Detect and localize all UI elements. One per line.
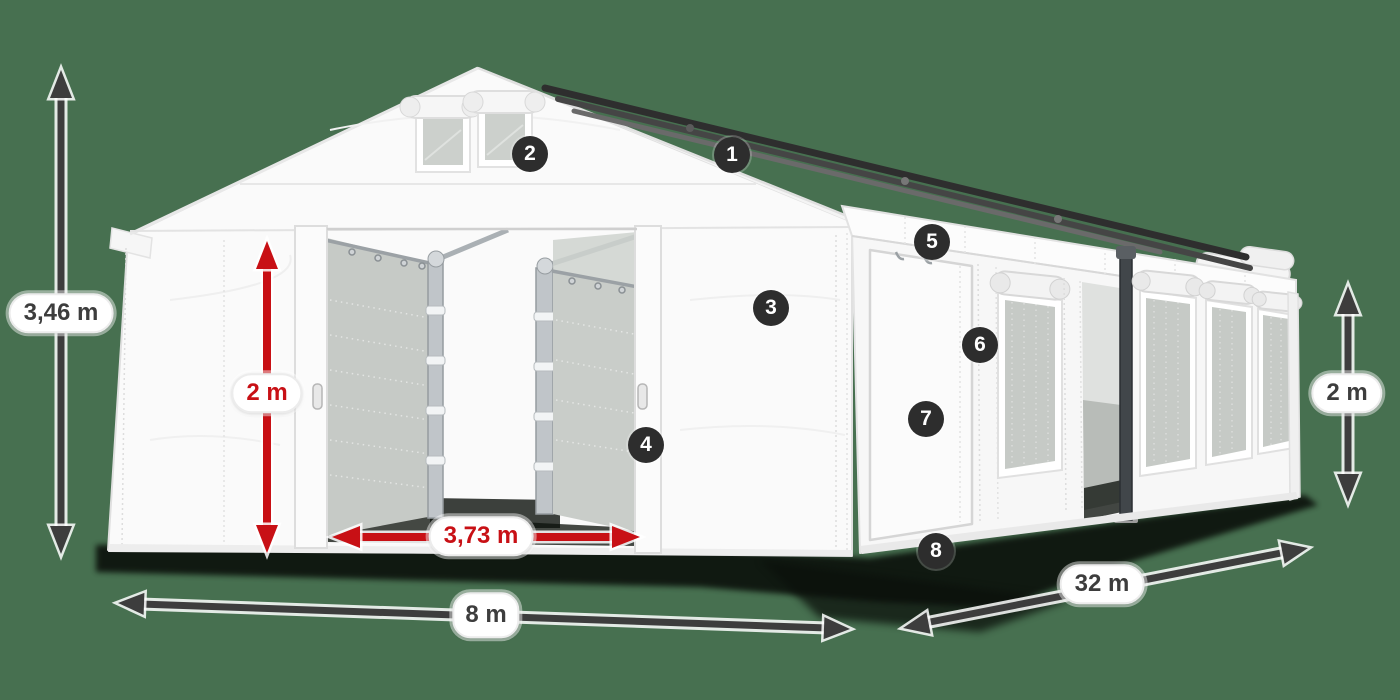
dimension-label-entrance-width: 3,73 m — [429, 516, 534, 556]
feature-badge-1[interactable]: 1 — [714, 137, 750, 173]
feature-badge-7[interactable]: 7 — [908, 401, 944, 437]
dimension-label-gable-width: 8 m — [452, 592, 519, 638]
side-door — [870, 250, 972, 540]
feature-badge-6[interactable]: 6 — [962, 327, 998, 363]
dimension-label-side-length: 32 m — [1060, 564, 1145, 604]
dimension-label-side-height: 2 m — [1311, 373, 1382, 413]
dimension-label-total-height: 3,46 m — [9, 293, 114, 333]
dimension-label-entrance-height: 2 m — [231, 373, 302, 413]
feature-badge-8[interactable]: 8 — [918, 533, 954, 569]
side-window-2 — [1131, 269, 1205, 476]
tent-illustration — [0, 0, 1400, 700]
feature-badge-2[interactable]: 2 — [512, 136, 548, 172]
feature-badge-4[interactable]: 4 — [628, 427, 664, 463]
feature-badge-5[interactable]: 5 — [914, 224, 950, 260]
feature-badge-3[interactable]: 3 — [753, 290, 789, 326]
side-window-3 — [1198, 280, 1261, 465]
side-open-section — [1082, 246, 1138, 523]
side-window-1 — [989, 270, 1071, 478]
tent-diagram-stage: 3,46 m 2 m 3,73 m 8 m 32 m 2 m 1 2 3 4 5… — [0, 0, 1400, 700]
